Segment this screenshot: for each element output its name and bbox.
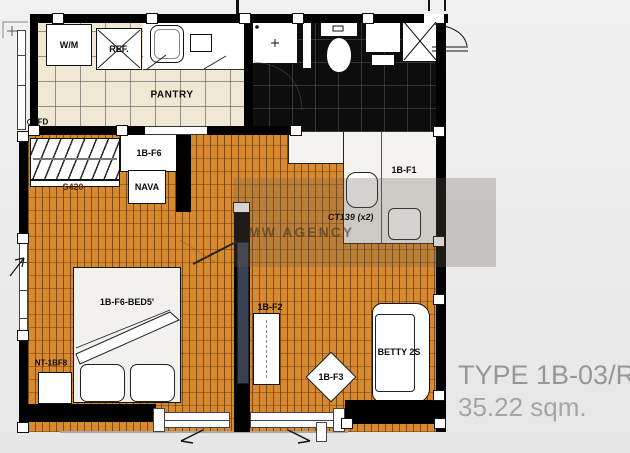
nightstand-label: NT-1BF8	[35, 359, 67, 368]
watermark-text: MW AGENCY	[248, 224, 354, 240]
pantry-label: PANTRY	[151, 90, 194, 101]
basin-cross-icon	[271, 39, 279, 47]
watermark-overlay	[233, 178, 496, 267]
direction-arrow-icon	[10, 258, 24, 276]
floorplan-canvas: W/M REF. FD PANTRY 1B-F6 NAVA S420 1B-F6…	[0, 0, 630, 453]
basin-faucet-dot	[255, 25, 259, 29]
bath-door-arc-icon	[254, 62, 302, 110]
dimension-tick	[428, 0, 430, 11]
sliding-arrow-icon	[181, 430, 203, 443]
bed-blanket-fold	[76, 312, 179, 364]
toilet-flush-button	[333, 26, 343, 31]
dimension-corner-line	[3, 22, 28, 38]
bedroom-door-leaf	[193, 242, 236, 264]
dimension-tick	[444, 0, 446, 11]
chairs-label: CT139 (x2)	[327, 212, 374, 222]
floor-scratch-line	[180, 240, 215, 262]
coffee-table-label: 1B-F3	[318, 372, 343, 382]
rug-code-label: S420	[62, 182, 83, 192]
entrance-door-leaf	[432, 47, 468, 51]
sofa-label: BETTY 2S	[378, 347, 421, 357]
counter-corner-lines	[146, 55, 226, 70]
dimension-cross-icon	[7, 26, 17, 36]
tv-console-label: 1B-F2	[257, 302, 282, 312]
floor-drain-label: FD	[38, 118, 49, 127]
shaft-x-icon	[404, 22, 436, 60]
bed-label: 1B-F6-BED5'	[100, 297, 154, 307]
dimension-tick	[236, 0, 239, 14]
entrance-door-arc-icon	[434, 24, 467, 46]
counter-label: 1B-F1	[391, 165, 416, 175]
refrigerator-label: REF.	[109, 44, 129, 54]
sliding-arrow-icon	[288, 430, 310, 443]
